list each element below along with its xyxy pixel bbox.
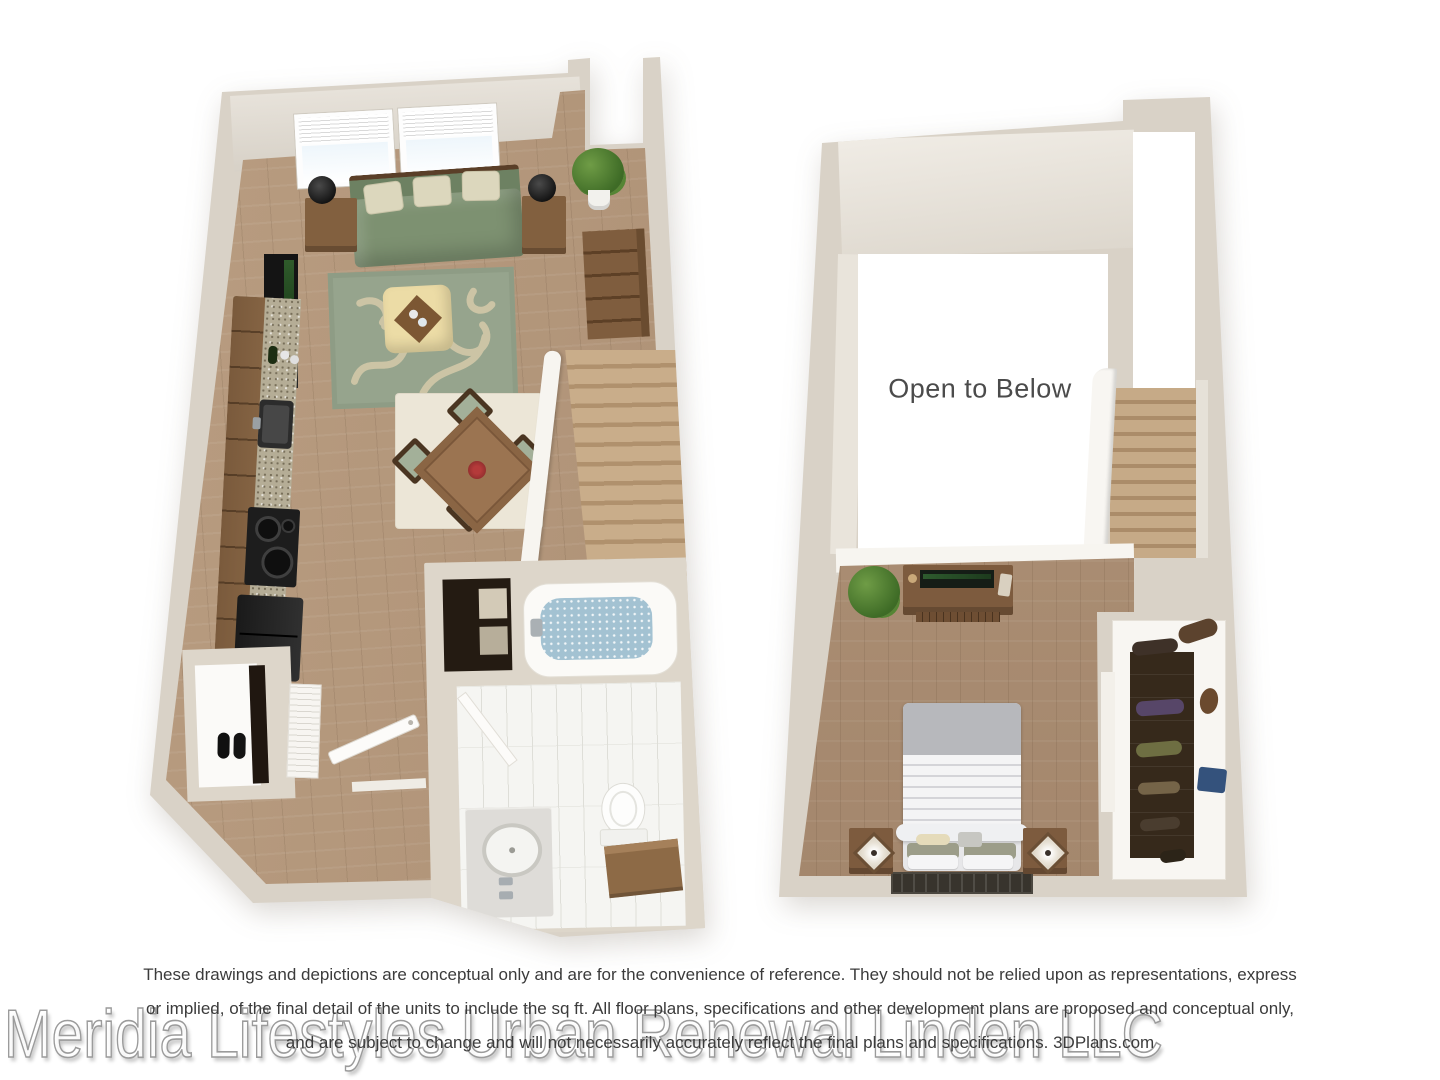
folded-jeans bbox=[1197, 767, 1227, 794]
second-floor-walls bbox=[0, 0, 1440, 1080]
dresser bbox=[903, 565, 1013, 615]
accent-pillow bbox=[958, 832, 982, 847]
plant-foliage bbox=[848, 566, 900, 618]
staircase bbox=[1110, 388, 1196, 558]
floorplan-image: Open to Below Meridia Lifestyles Urban R… bbox=[0, 0, 1440, 1080]
bedroom-floor bbox=[0, 0, 1440, 1080]
disclaimer: These drawings and depictions are concep… bbox=[0, 958, 1440, 1060]
disclaimer-line: and are subject to change and will not n… bbox=[0, 1026, 1440, 1060]
bed-pillow-white bbox=[908, 855, 958, 869]
open-to-below-label: Open to Below bbox=[888, 374, 1072, 405]
bed bbox=[903, 703, 1021, 871]
hanging-clothes bbox=[1138, 781, 1181, 795]
dresser-shelf bbox=[916, 612, 1000, 622]
disclaimer-line: or implied, of the final detail of the u… bbox=[0, 992, 1440, 1026]
decor-box bbox=[998, 573, 1013, 596]
tv bbox=[920, 570, 994, 588]
wall-face bbox=[838, 130, 1138, 258]
potted-plant bbox=[846, 564, 904, 624]
stair-wall-face bbox=[1196, 380, 1208, 558]
tv-screen bbox=[923, 574, 991, 579]
duvet-top bbox=[903, 703, 1021, 755]
disclaimer-line: These drawings and depictions are concep… bbox=[0, 958, 1440, 992]
stairwell-void bbox=[1133, 132, 1195, 388]
second-floor-plan bbox=[0, 0, 1440, 1080]
bed-pillow-white bbox=[963, 855, 1013, 869]
bolster-pillow bbox=[916, 834, 950, 845]
duvet-stripes bbox=[903, 755, 1021, 829]
decor-cup bbox=[908, 574, 917, 583]
closet-door bbox=[1099, 672, 1115, 812]
bed-rug bbox=[891, 872, 1033, 894]
